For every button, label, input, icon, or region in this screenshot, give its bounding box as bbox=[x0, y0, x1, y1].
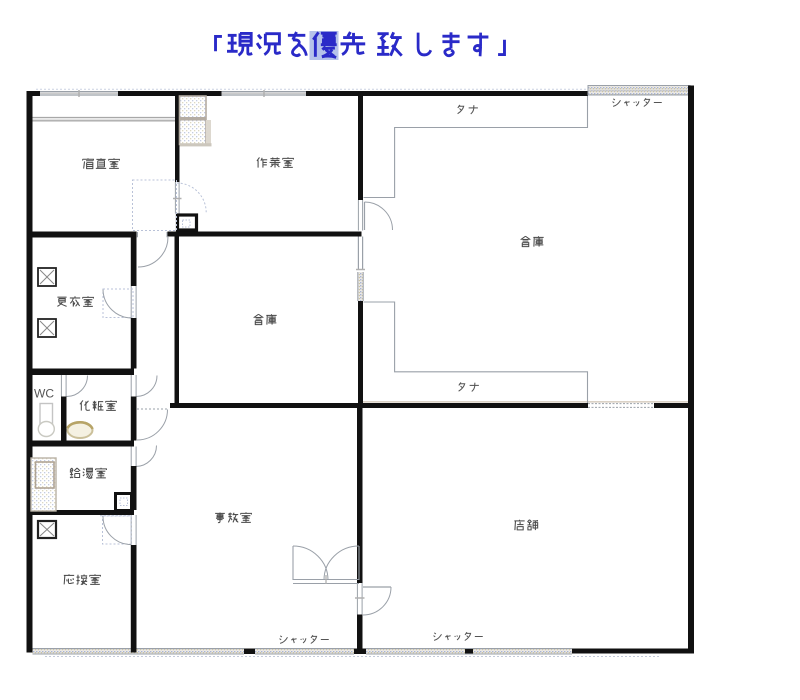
svg-text:WC: WC bbox=[34, 387, 54, 401]
